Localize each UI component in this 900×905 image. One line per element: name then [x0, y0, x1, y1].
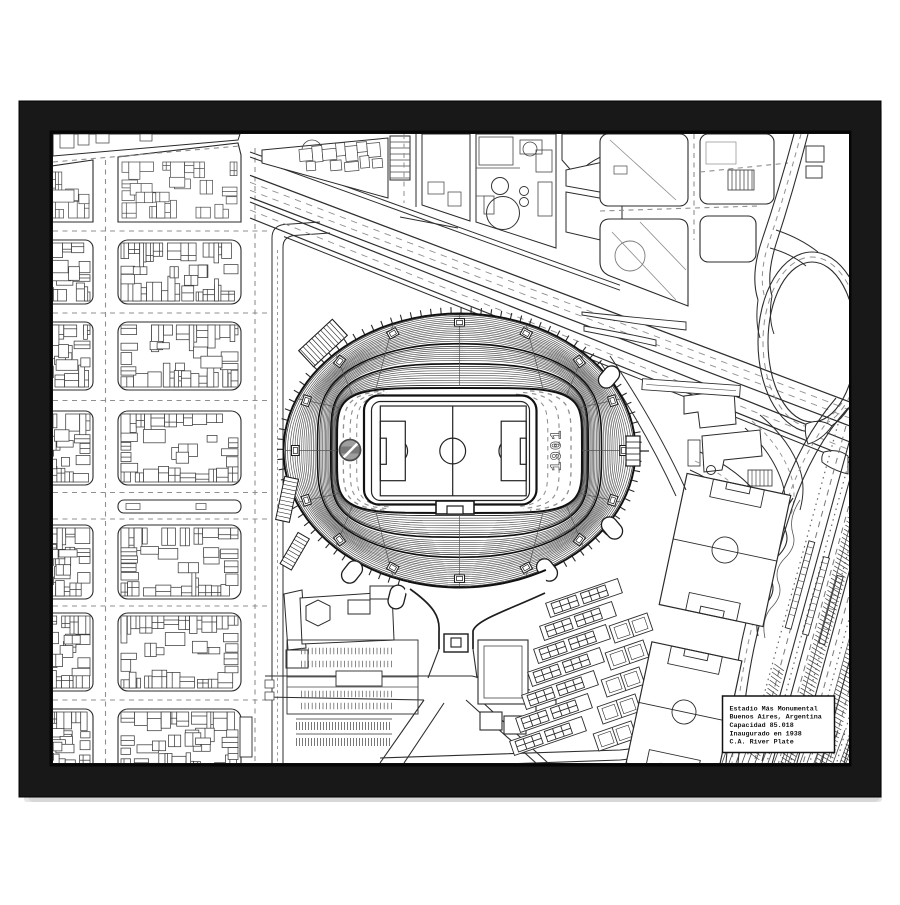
svg-text:Capacidad 85.018: Capacidad 85.018 — [730, 722, 794, 730]
svg-text:Buenos Aires, Argentina: Buenos Aires, Argentina — [730, 714, 822, 722]
svg-text:C.A. River Plate: C.A. River Plate — [730, 739, 794, 747]
svg-text:1901: 1901 — [549, 429, 566, 471]
svg-text:Inaugurado en 1938: Inaugurado en 1938 — [730, 730, 802, 738]
svg-text:Estadio Más Monumental: Estadio Más Monumental — [730, 705, 818, 713]
